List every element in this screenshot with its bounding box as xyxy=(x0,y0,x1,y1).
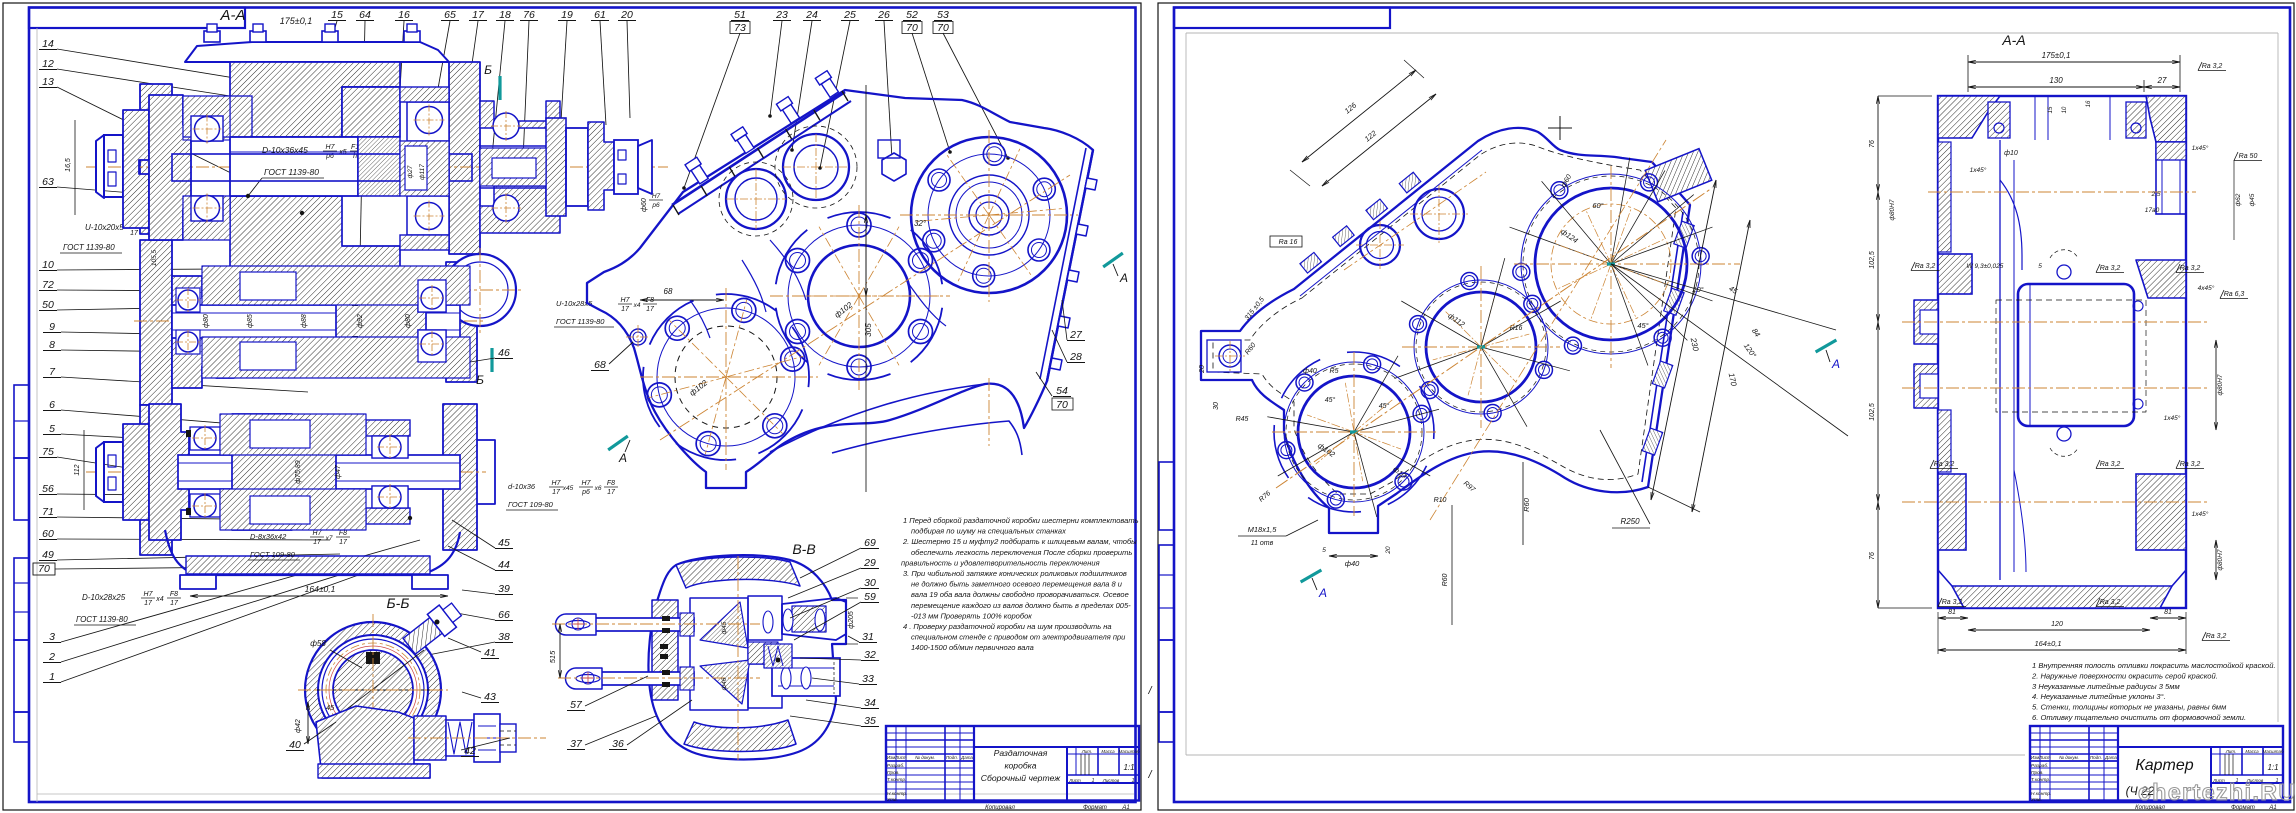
svg-text:16,5: 16,5 xyxy=(65,158,72,172)
svg-text:Масштаб: Масштаб xyxy=(2262,749,2283,754)
svg-text:30: 30 xyxy=(1213,402,1220,410)
svg-text:17: 17 xyxy=(552,489,561,496)
svg-text:ф80Н7: ф80Н7 xyxy=(2217,374,2224,395)
svg-text:17: 17 xyxy=(646,306,655,313)
svg-text:ГОСТ 109-80: ГОСТ 109-80 xyxy=(508,500,554,509)
svg-text:11 отв: 11 отв xyxy=(1251,540,1274,547)
svg-text:А1: А1 xyxy=(2268,805,2276,811)
svg-text:32: 32 xyxy=(864,649,876,661)
svg-text:120: 120 xyxy=(2051,621,2063,628)
svg-text:Утв.: Утв. xyxy=(2031,797,2042,803)
svg-text:164±0,1: 164±0,1 xyxy=(2034,639,2061,648)
svg-text:Н.контр.: Н.контр. xyxy=(2031,791,2051,797)
svg-text:ф80: ф80 xyxy=(405,314,412,328)
svg-text:х45: х45 xyxy=(562,485,574,492)
svg-text:1:1: 1:1 xyxy=(1123,763,1134,772)
svg-text:15: 15 xyxy=(2048,106,2054,113)
svg-text:17: 17 xyxy=(130,230,139,237)
svg-text:45: 45 xyxy=(498,537,510,549)
svg-text:1: 1 xyxy=(1132,778,1135,784)
svg-text:66: 66 xyxy=(498,609,510,621)
svg-text:ф88: ф88 xyxy=(301,314,308,328)
svg-text:2. Наружные поверхности окраси: 2. Наружные поверхности окрасить серой к… xyxy=(2031,671,2218,680)
svg-text:73: 73 xyxy=(734,22,746,34)
svg-text:Сборочный чертеж: Сборочный чертеж xyxy=(981,773,1062,783)
svg-text:Ra 3,2: Ra 3,2 xyxy=(2206,633,2227,640)
svg-text:ГОСТ 109-80: ГОСТ 109-80 xyxy=(250,550,296,559)
svg-text:5. Стенки, толщины которых не: 5. Стенки, толщины которых не указаны, р… xyxy=(2032,703,2227,712)
svg-text:ГОСТ 1139-80: ГОСТ 1139-80 xyxy=(63,243,115,252)
svg-text:U-10x20x5: U-10x20x5 xyxy=(85,223,124,232)
svg-text:ф117: ф117 xyxy=(419,164,426,180)
svg-text:45°: 45° xyxy=(1379,402,1390,410)
svg-text:44: 44 xyxy=(498,559,510,571)
svg-text:18: 18 xyxy=(499,9,511,21)
svg-text:ф85: ф85 xyxy=(247,314,254,328)
svg-text:М18х1,5: М18х1,5 xyxy=(1248,525,1278,534)
svg-text:А-А: А-А xyxy=(2001,32,2025,48)
svg-text:81: 81 xyxy=(1948,609,1956,616)
svg-text:р6: р6 xyxy=(581,489,590,496)
svg-text:4 . Проверку раздаточной короб: 4 . Проверку раздаточной коробки на шум … xyxy=(903,622,1112,631)
svg-text:53: 53 xyxy=(937,9,949,21)
svg-text:76: 76 xyxy=(523,9,535,21)
svg-text:Формат: Формат xyxy=(1083,805,1107,811)
svg-text:ГОСТ 1139-80: ГОСТ 1139-80 xyxy=(76,615,128,624)
svg-text:Дата: Дата xyxy=(2104,755,2117,760)
svg-text:H7: H7 xyxy=(621,297,631,304)
svg-text:R10: R10 xyxy=(1434,497,1447,504)
svg-text:71: 71 xyxy=(42,506,54,518)
svg-text:3. При чибильной затяжке конич: 3. При чибильной затяжке конических роли… xyxy=(903,569,1127,578)
svg-text:64: 64 xyxy=(359,9,371,21)
svg-text:61: 61 xyxy=(594,9,606,21)
svg-text:16: 16 xyxy=(398,9,410,21)
svg-text:52: 52 xyxy=(906,9,918,21)
svg-text:Раздаточная: Раздаточная xyxy=(994,748,1048,758)
svg-text:Ra 3,2: Ra 3,2 xyxy=(1934,461,1955,468)
svg-text:обеспечить легкость переключен: обеспечить легкость переключения После с… xyxy=(911,548,1132,557)
svg-text:А: А xyxy=(1831,357,1840,371)
svg-text:H7: H7 xyxy=(582,480,592,487)
svg-text:ф75,89: ф75,89 xyxy=(295,460,302,483)
svg-text:Ra 50: Ra 50 xyxy=(2239,153,2258,160)
svg-text:D-10x28x25: D-10x28x25 xyxy=(82,593,126,602)
svg-text:Лит.: Лит. xyxy=(1081,749,1093,754)
svg-text:70: 70 xyxy=(1056,399,1068,411)
svg-text:65: 65 xyxy=(444,9,456,21)
svg-text:56: 56 xyxy=(42,483,54,495)
svg-text:57: 57 xyxy=(570,699,583,711)
svg-text:Копировал: Копировал xyxy=(2135,805,2165,811)
svg-text:Ra 3,2: Ra 3,2 xyxy=(2100,599,2121,606)
svg-text:Дата: Дата xyxy=(960,755,973,760)
svg-text:51: 51 xyxy=(734,9,746,21)
svg-text:ф45: ф45 xyxy=(721,621,728,634)
svg-text:68: 68 xyxy=(664,287,673,296)
svg-text:Подп.: Подп. xyxy=(2090,755,2102,760)
svg-text:8: 8 xyxy=(49,339,55,351)
svg-text:70: 70 xyxy=(906,22,918,34)
svg-text:ф58: ф58 xyxy=(310,639,326,648)
svg-text:х4: х4 xyxy=(633,302,641,309)
svg-text:А: А xyxy=(618,451,627,465)
svg-text:17а0: 17а0 xyxy=(2145,207,2160,214)
svg-text:6. Отливку тщательно очистить: 6. Отливку тщательно очистить от формово… xyxy=(2032,713,2246,722)
svg-text:Н.контр.: Н.контр. xyxy=(887,791,907,797)
svg-text:17: 17 xyxy=(472,9,485,21)
svg-text:р6: р6 xyxy=(651,202,660,209)
svg-text:специальном стенде с приводом: специальном стенде с приводом от электро… xyxy=(911,633,1126,642)
svg-text:А1: А1 xyxy=(1121,805,1129,811)
svg-text:R45: R45 xyxy=(1236,416,1249,423)
svg-text:37: 37 xyxy=(570,738,583,750)
svg-text:А-А: А-А xyxy=(219,7,245,24)
svg-text:Масса: Масса xyxy=(1101,749,1115,754)
svg-text:ф42: ф42 xyxy=(295,719,302,733)
svg-text:17: 17 xyxy=(144,600,153,607)
svg-text:Разраб.: Разраб. xyxy=(887,763,904,769)
svg-text:36: 36 xyxy=(612,738,624,750)
svg-text:Б-Б: Б-Б xyxy=(387,595,410,611)
svg-text:х5: х5 xyxy=(338,149,347,156)
svg-text:5: 5 xyxy=(2038,263,2042,270)
svg-text:1х45°: 1х45° xyxy=(2192,144,2209,152)
svg-text:4. Неуказанные литейные уклон: 4. Неуказанные литейные уклоны 3°. xyxy=(2032,692,2166,701)
svg-text:x4: x4 xyxy=(155,596,164,603)
svg-text:25: 25 xyxy=(843,9,856,21)
svg-text:H7: H7 xyxy=(326,144,336,151)
svg-text:F8: F8 xyxy=(339,530,347,537)
svg-text:1400-1500 об/мин первичного ва: 1400-1500 об/мин первичного вала xyxy=(911,643,1034,652)
svg-text:5: 5 xyxy=(1322,547,1326,554)
svg-text:ф80: ф80 xyxy=(203,314,210,328)
svg-text:45°: 45° xyxy=(1325,396,1336,404)
svg-text:D-8х36х42: D-8х36х42 xyxy=(250,532,287,541)
svg-text:45: 45 xyxy=(326,703,335,712)
svg-text:№ докум.: № докум. xyxy=(915,755,935,760)
svg-text:Изм: Изм xyxy=(2031,755,2039,760)
svg-text:R250: R250 xyxy=(1620,517,1640,526)
svg-text:ф60: ф60 xyxy=(641,198,648,212)
svg-text:63: 63 xyxy=(42,176,54,188)
svg-text:1:1: 1:1 xyxy=(2267,763,2278,772)
svg-text:175±0,1: 175±0,1 xyxy=(2042,51,2071,60)
svg-text:1х45°: 1х45° xyxy=(1970,166,1987,174)
svg-text:Ra 3,2: Ra 3,2 xyxy=(2180,265,2201,272)
svg-text:А: А xyxy=(1119,271,1128,285)
svg-text:27: 27 xyxy=(2157,76,2167,85)
svg-text:1: 1 xyxy=(1092,778,1095,784)
svg-text:chertezhi.RU: chertezhi.RU xyxy=(2138,779,2296,805)
svg-text:1 Внутренняя полость отливки: 1 Внутренняя полость отливки покрасить м… xyxy=(2032,661,2276,670)
svg-text:ф205: ф205 xyxy=(848,611,855,629)
svg-text:76: 76 xyxy=(1869,140,1876,148)
svg-text:Б: Б xyxy=(484,63,492,77)
svg-text:Ra 6,3: Ra 6,3 xyxy=(2224,291,2245,298)
svg-text:105,5: 105,5 xyxy=(151,249,158,266)
svg-text:ф10: ф10 xyxy=(2004,150,2018,157)
svg-text:ф40: ф40 xyxy=(1303,368,1317,375)
svg-text:Разраб.: Разраб. xyxy=(2031,763,2048,769)
svg-text:39: 39 xyxy=(498,583,510,595)
svg-text:Ra 3,2: Ra 3,2 xyxy=(2202,63,2223,70)
svg-text:Масштаб: Масштаб xyxy=(1118,749,1139,754)
svg-text:Формат: Формат xyxy=(2231,805,2255,811)
svg-text:49: 49 xyxy=(42,549,54,561)
svg-text:Ra 16: Ra 16 xyxy=(1279,239,1298,246)
svg-text:Масса: Масса xyxy=(2245,749,2259,754)
svg-text:Т.контр.: Т.контр. xyxy=(2031,777,2050,783)
svg-text:75: 75 xyxy=(42,446,54,458)
svg-text:29: 29 xyxy=(863,557,876,569)
svg-text:59: 59 xyxy=(864,591,876,603)
svg-text:40: 40 xyxy=(289,739,301,751)
svg-text:102,5: 102,5 xyxy=(1869,251,1876,269)
svg-text:Ra 3,2: Ra 3,2 xyxy=(2100,265,2121,272)
svg-text:16: 16 xyxy=(2086,100,2092,107)
svg-text:F8: F8 xyxy=(607,480,615,487)
svg-text:R5: R5 xyxy=(1330,368,1339,375)
svg-text:Т.контр.: Т.контр. xyxy=(887,777,906,783)
svg-text:-013 мм Проверять 100% коробок: -013 мм Проверять 100% коробок xyxy=(911,611,1032,620)
svg-text:33: 33 xyxy=(862,673,874,685)
svg-text:Изм: Изм xyxy=(887,755,895,760)
svg-text:ф92: ф92 xyxy=(357,314,364,328)
svg-text:46: 46 xyxy=(498,347,510,359)
svg-text:ф46: ф46 xyxy=(721,677,728,690)
svg-text:81: 81 xyxy=(2164,609,2172,616)
svg-text:Ra 3,2: Ra 3,2 xyxy=(2100,461,2121,468)
svg-text:R60: R60 xyxy=(1522,497,1531,512)
svg-text:102,5: 102,5 xyxy=(1869,403,1876,421)
svg-text:34: 34 xyxy=(864,697,876,709)
svg-text:17: 17 xyxy=(170,600,179,607)
svg-text:12: 12 xyxy=(42,58,54,70)
svg-text:24: 24 xyxy=(805,9,818,21)
svg-text:72: 72 xyxy=(42,279,54,291)
svg-text:3: 3 xyxy=(49,631,55,643)
svg-text:ф47: ф47 xyxy=(335,464,342,479)
svg-text:2. Шестерню 15 и муфту2 подбир: 2. Шестерню 15 и муфту2 подбирать к шлиц… xyxy=(902,537,1137,546)
svg-text:Ra 3,2: Ra 3,2 xyxy=(2180,461,2201,468)
svg-text:А: А xyxy=(1318,586,1327,600)
svg-text:60°: 60° xyxy=(1592,201,1603,210)
svg-text:Ra 3,2: Ra 3,2 xyxy=(1915,263,1936,270)
svg-text:H7: H7 xyxy=(144,591,154,598)
svg-text:вала 19 оба вала должны свобод: вала 19 оба вала должны свободно провора… xyxy=(911,590,1129,599)
svg-text:Картер: Картер xyxy=(2135,757,2193,774)
svg-text:H7: H7 xyxy=(313,530,323,537)
svg-text:30: 30 xyxy=(864,577,876,589)
svg-text:х7: х7 xyxy=(325,535,333,542)
svg-text:ф80Н7: ф80Н7 xyxy=(1889,199,1896,220)
svg-text:9: 9 xyxy=(49,321,55,333)
svg-text:38: 38 xyxy=(498,631,510,643)
svg-text:20: 20 xyxy=(1385,546,1392,555)
svg-text:3 Неуказанные литейные радиус: 3 Неуказанные литейные радиусы 3 5мм xyxy=(2032,682,2180,691)
svg-text:1 Перед сборкой раздаточной ко: 1 Перед сборкой раздаточной коробки шест… xyxy=(903,516,1139,525)
svg-text:76: 76 xyxy=(1869,552,1876,560)
svg-text:70: 70 xyxy=(937,22,949,34)
svg-text:1х45°: 1х45° xyxy=(2192,510,2209,518)
svg-text:20: 20 xyxy=(1199,365,1206,374)
svg-text:перемещение каждого из валов д: перемещение каждого из валов должно быть… xyxy=(911,601,1131,610)
svg-text:41: 41 xyxy=(484,647,496,659)
svg-text:17: 17 xyxy=(607,489,616,496)
svg-text:ф80Н7: ф80Н7 xyxy=(2217,549,2224,570)
svg-text:Лит.: Лит. xyxy=(2225,749,2237,754)
svg-text:45°: 45° xyxy=(1637,321,1648,330)
svg-text:43: 43 xyxy=(484,691,496,703)
svg-text:H7: H7 xyxy=(552,480,562,487)
svg-text:13: 13 xyxy=(42,76,54,88)
svg-text:130: 130 xyxy=(2049,76,2063,85)
svg-text:ф40: ф40 xyxy=(1345,559,1360,568)
svg-text:Лист: Лист xyxy=(2038,755,2051,760)
svg-text:70: 70 xyxy=(38,563,50,575)
svg-text:Утв.: Утв. xyxy=(887,797,898,803)
svg-text:112: 112 xyxy=(74,464,81,475)
svg-text:Ra 3,2: Ra 3,2 xyxy=(1942,599,1963,606)
svg-text:69: 69 xyxy=(864,537,876,549)
svg-text:68: 68 xyxy=(594,359,606,371)
svg-text:ф27: ф27 xyxy=(407,165,414,178)
svg-text:15: 15 xyxy=(331,9,343,21)
svg-text:ф62: ф62 xyxy=(2235,193,2242,206)
svg-text:164±0,1: 164±0,1 xyxy=(305,584,336,594)
svg-text:305: 305 xyxy=(864,323,873,337)
svg-text:подбирая по шуму на специальны: подбирая по шуму на специальных станках xyxy=(911,527,1066,536)
svg-text:50: 50 xyxy=(42,299,54,311)
svg-text:ГОСТ 1139-80: ГОСТ 1139-80 xyxy=(556,317,605,326)
svg-text:W 9,3±0,025: W 9,3±0,025 xyxy=(1967,263,2004,270)
svg-text:175±0,1: 175±0,1 xyxy=(280,16,312,26)
svg-text:10: 10 xyxy=(2062,106,2068,113)
svg-text:17: 17 xyxy=(621,306,630,313)
svg-text:1х45°: 1х45° xyxy=(2164,414,2181,422)
svg-text:H7: H7 xyxy=(652,193,661,200)
svg-text:2: 2 xyxy=(48,651,55,663)
svg-text:F8: F8 xyxy=(170,591,178,598)
svg-text:№ докум.: № докум. xyxy=(2059,755,2079,760)
svg-text:32°: 32° xyxy=(914,219,927,228)
svg-text:1: 1 xyxy=(49,671,55,683)
svg-text:Лист: Лист xyxy=(1068,778,1081,783)
svg-text:d-10х36: d-10х36 xyxy=(508,482,536,491)
svg-text:Пров.: Пров. xyxy=(2031,770,2044,776)
svg-text:Пров.: Пров. xyxy=(887,770,900,776)
svg-text:35: 35 xyxy=(864,715,876,727)
svg-text:515: 515 xyxy=(548,650,557,663)
svg-text:28: 28 xyxy=(1069,351,1082,363)
svg-text:Б: Б xyxy=(476,373,484,387)
svg-text:Лист: Лист xyxy=(894,755,907,760)
svg-text:6: 6 xyxy=(49,399,55,411)
svg-text:х6: х6 xyxy=(594,485,602,492)
svg-text:В-В: В-В xyxy=(792,541,815,557)
svg-text:10: 10 xyxy=(42,259,54,271)
svg-text:коробка: коробка xyxy=(1004,761,1036,771)
svg-text:2,5: 2,5 xyxy=(2150,191,2160,198)
svg-text:31: 31 xyxy=(862,631,874,643)
svg-text:ф45: ф45 xyxy=(2249,193,2256,206)
svg-text:F8: F8 xyxy=(646,297,654,304)
svg-text:54: 54 xyxy=(1056,385,1068,397)
svg-text:17: 17 xyxy=(313,539,322,546)
svg-text:60: 60 xyxy=(42,528,54,540)
svg-text:19: 19 xyxy=(561,9,573,21)
svg-text:20: 20 xyxy=(620,9,633,21)
svg-text:14: 14 xyxy=(42,38,54,50)
svg-text:R60: R60 xyxy=(1442,573,1449,586)
svg-text:Копировал: Копировал xyxy=(985,805,1015,811)
svg-text:не должно быть заметного осево: не должно быть заметного осевого перемещ… xyxy=(911,580,1123,589)
svg-text:26: 26 xyxy=(877,9,890,21)
svg-text:17: 17 xyxy=(339,539,348,546)
svg-text:ГОСТ 1139-80: ГОСТ 1139-80 xyxy=(264,167,319,177)
svg-text:правильность и удовлетворитель: правильность и удовлетворительность пере… xyxy=(901,558,1100,567)
svg-text:Листов: Листов xyxy=(1102,778,1120,783)
svg-text:27: 27 xyxy=(1069,329,1083,341)
svg-text:5: 5 xyxy=(49,423,55,435)
svg-text:4х45°: 4х45° xyxy=(2198,284,2215,292)
svg-text:23: 23 xyxy=(775,9,788,21)
svg-text:Подп.: Подп. xyxy=(946,755,958,760)
